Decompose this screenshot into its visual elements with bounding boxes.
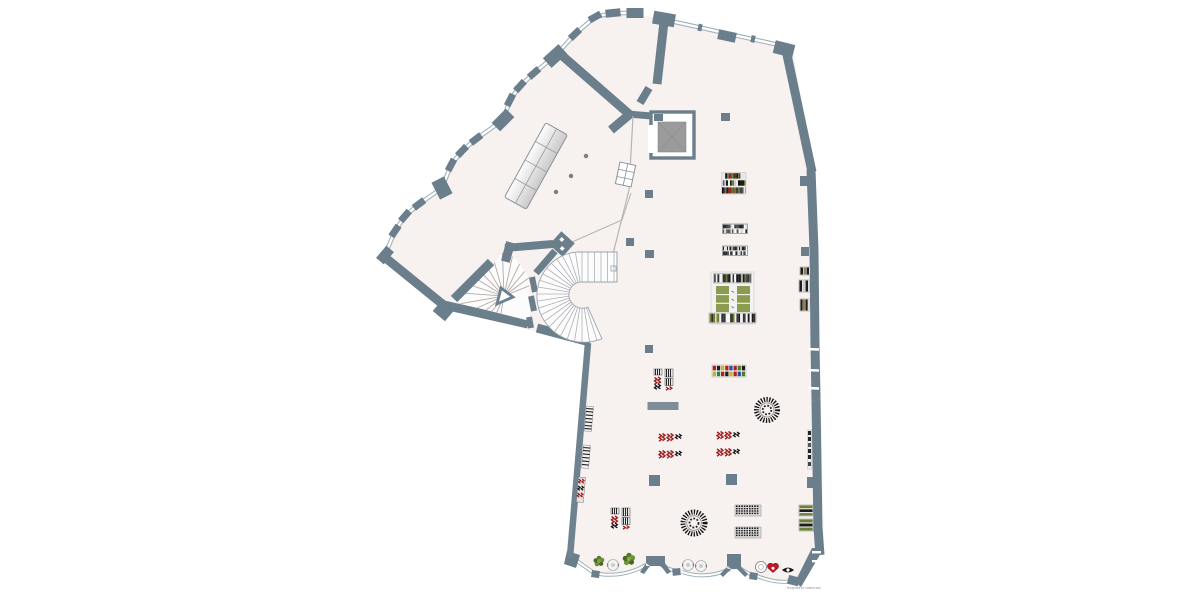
svg-text:floorplanner watermark: floorplanner watermark (787, 585, 821, 590)
